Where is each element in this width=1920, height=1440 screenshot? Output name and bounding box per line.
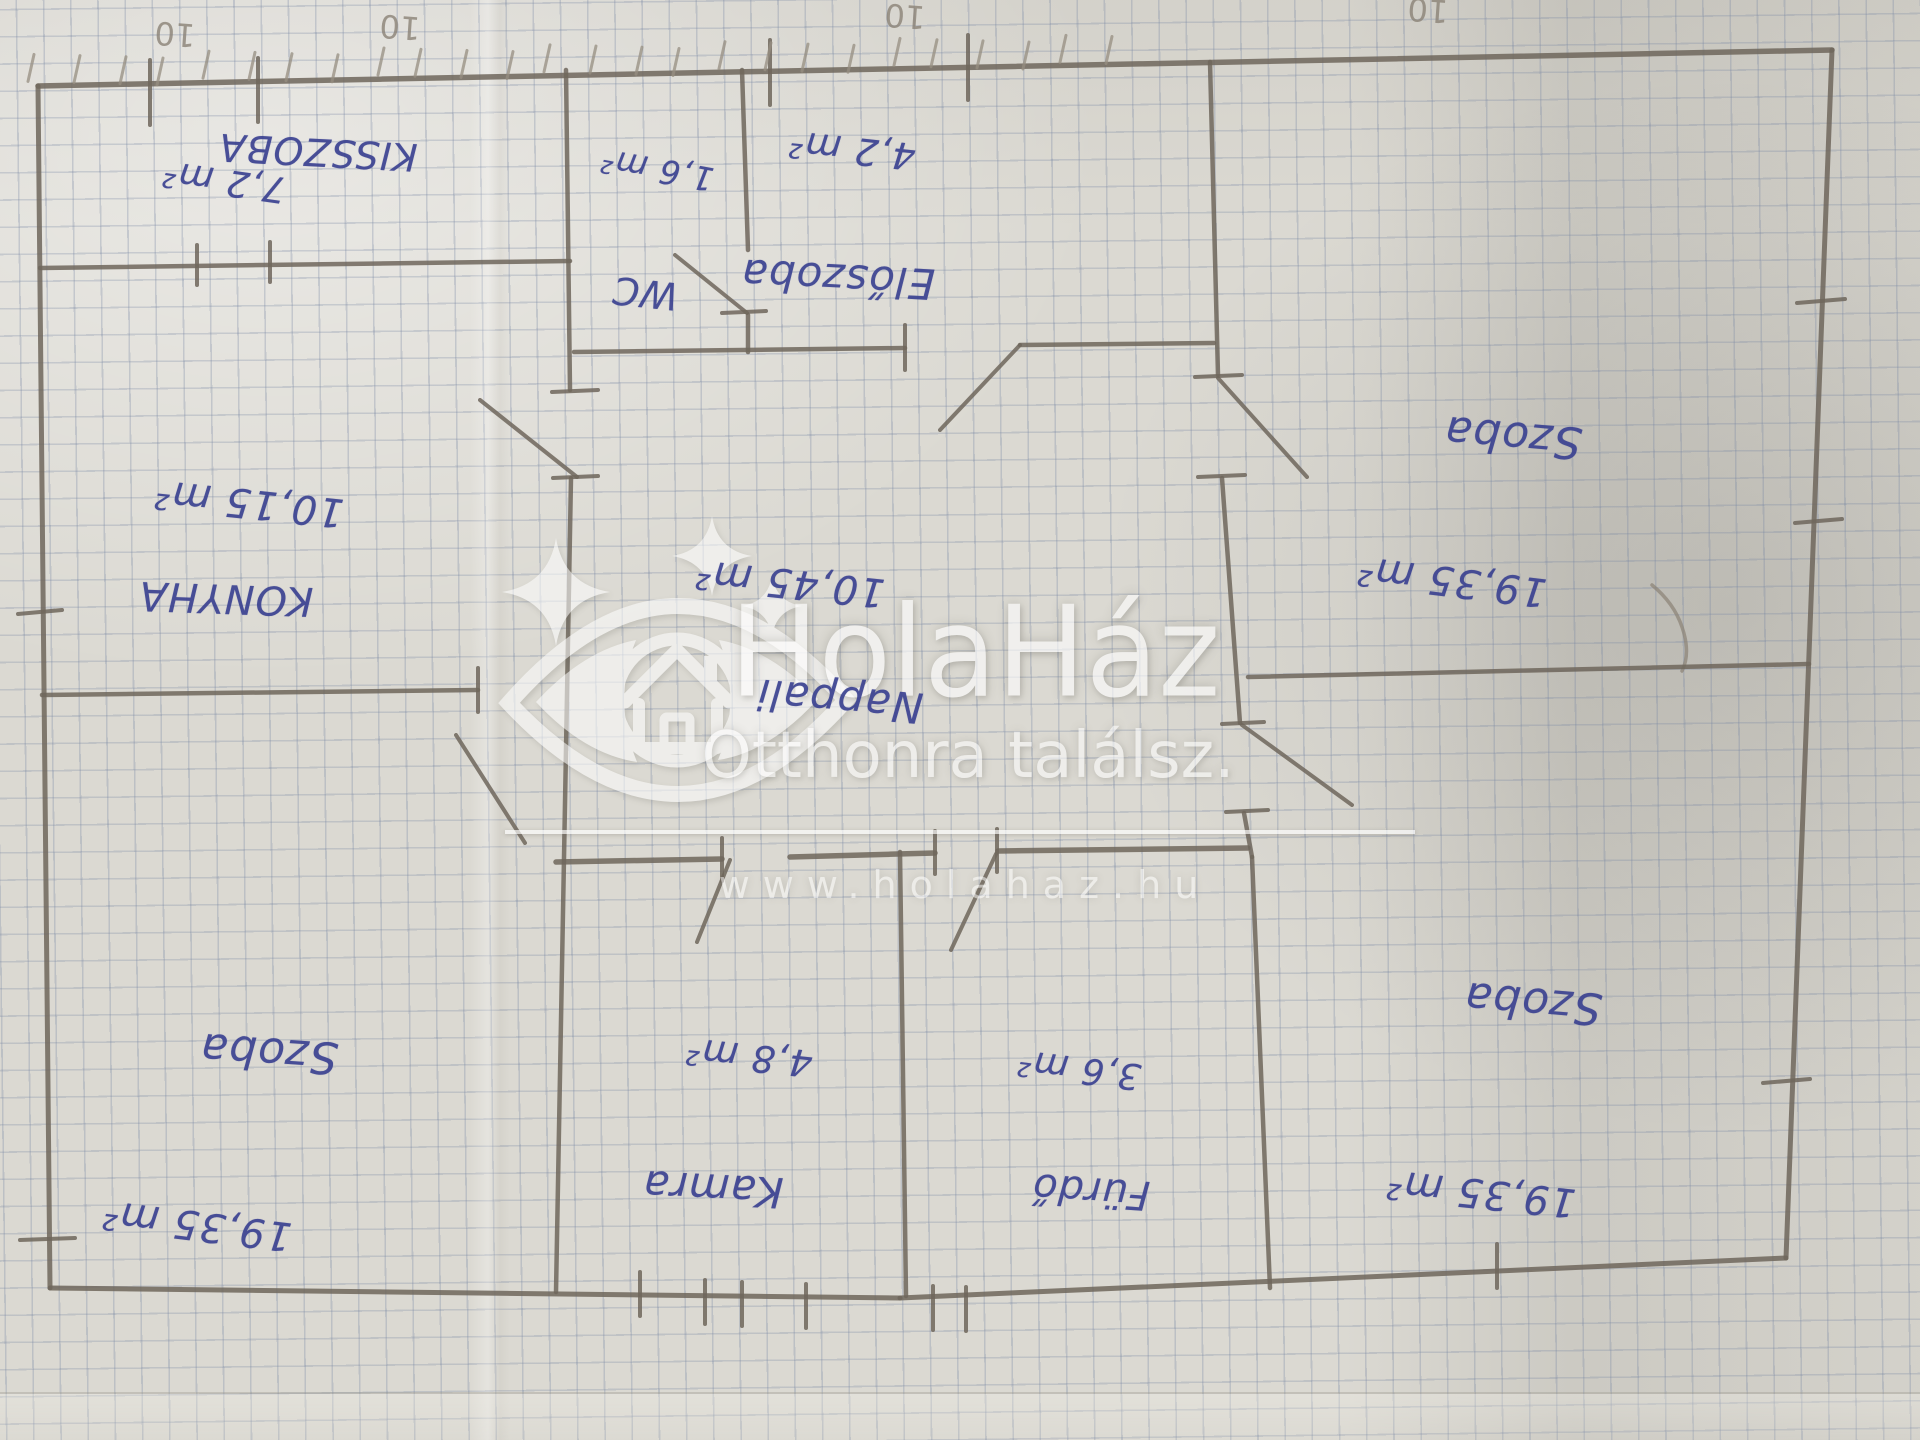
pencil-measure-note: 10 bbox=[883, 0, 926, 36]
watermark-tagline: Otthonra találsz. bbox=[701, 719, 1234, 793]
watermark-url: www.holahaz.hu bbox=[719, 863, 1212, 907]
room-name-wc: WC bbox=[610, 268, 680, 319]
room-name-konyha: KONYHA bbox=[138, 572, 314, 624]
room-name-kamra: Kamra bbox=[641, 1161, 784, 1217]
room-name-eloszoba: Előszoba bbox=[740, 249, 936, 308]
room-name-furdo: Fürdő bbox=[1031, 1164, 1152, 1218]
pencil-measure-note: 10 bbox=[153, 14, 196, 55]
pencil-measure-note: 10 bbox=[378, 7, 421, 48]
watermark-divider-line bbox=[505, 830, 1415, 834]
pencil-measure-note: 10 bbox=[1406, 0, 1449, 30]
room-name-szoba-bl: Szoba bbox=[198, 1023, 339, 1083]
floor-plan-photo: HolaHáz Otthonra találsz. www.holahaz.hu… bbox=[0, 0, 1920, 1440]
